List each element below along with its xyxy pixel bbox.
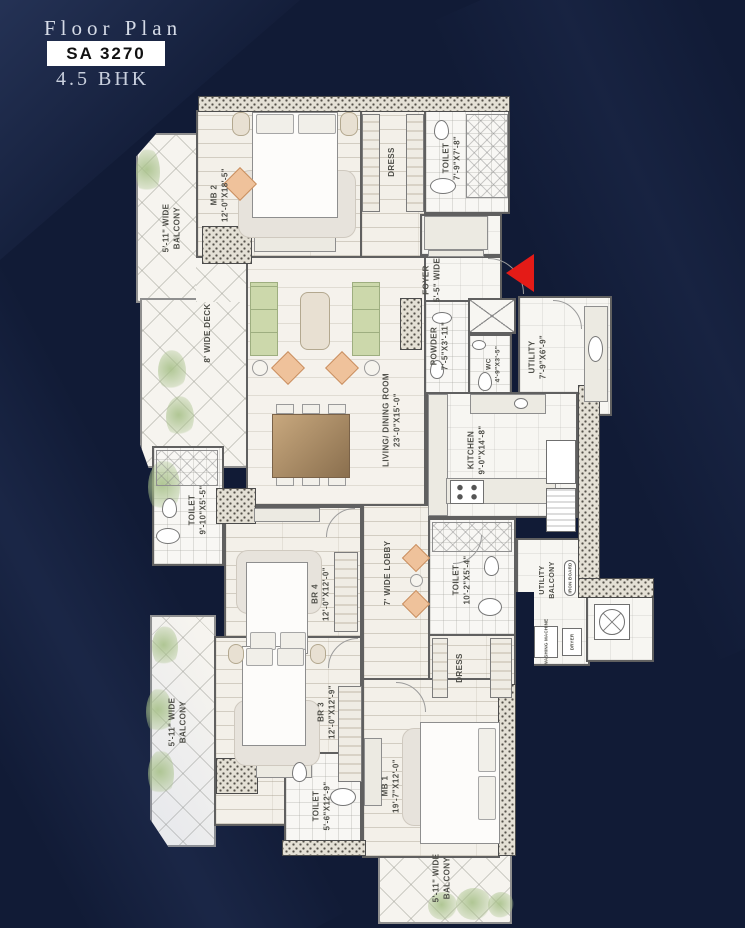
kitchen-tall-unit: [546, 488, 576, 532]
plant: [488, 892, 514, 918]
pillow: [478, 728, 496, 772]
plant: [166, 396, 194, 438]
iron-board-label: IRON BOARD: [568, 563, 573, 594]
side-table: [310, 644, 326, 664]
side-table: [228, 644, 244, 664]
dining-table: [272, 414, 350, 478]
pillow: [246, 648, 273, 666]
wardrobe: [362, 114, 380, 212]
wall-hatch: [578, 385, 600, 581]
wall-hatch: [498, 684, 516, 856]
dining-chair: [302, 404, 320, 414]
wall-hatch: [400, 298, 422, 350]
dresser: [364, 738, 382, 806]
plant: [456, 888, 492, 920]
shower-area: [156, 450, 218, 486]
washing-machine-label: WASHING MACHINE: [544, 619, 549, 666]
foyer-bench: [428, 250, 484, 257]
pillow: [298, 114, 336, 134]
entry-arrow-icon: [506, 254, 534, 292]
wall-hatch: [198, 96, 510, 112]
wc-icon: [478, 372, 492, 391]
kitchen-counter: [428, 394, 448, 516]
side-table: [340, 112, 358, 136]
plant: [152, 626, 178, 668]
sink-icon: [588, 336, 603, 362]
shaft: [468, 298, 516, 334]
washbasin-icon: [472, 340, 486, 350]
dryer-label: DRYER: [570, 634, 575, 651]
wardrobe: [432, 638, 448, 698]
washbasin-icon: [156, 528, 180, 544]
washbasin-icon: [478, 598, 502, 616]
side-table: [252, 360, 268, 376]
stove-icon: [450, 480, 484, 504]
dining-chair: [328, 404, 346, 414]
dining-chair: [276, 404, 294, 414]
washbasin-icon: [330, 788, 356, 806]
plant: [146, 688, 172, 736]
wardrobe: [406, 114, 424, 212]
floor-plan-page: Floor Plan SA 3270 4.5 BHK: [0, 0, 745, 928]
balcony-notch: [516, 592, 534, 666]
shower-area: [466, 114, 508, 198]
side-table: [410, 574, 423, 587]
sofa: [352, 282, 380, 356]
sink-icon: [514, 398, 528, 409]
refrigerator-icon: [546, 440, 576, 484]
deck-floor: [140, 298, 248, 468]
washbasin-icon: [432, 312, 452, 324]
side-table: [364, 360, 380, 376]
unit-code-badge: SA 3270: [47, 41, 165, 66]
wall-hatch: [216, 488, 256, 524]
wc-icon: [292, 762, 307, 782]
coffee-table: [300, 292, 330, 350]
wc-icon: [434, 120, 449, 140]
pillow: [277, 648, 304, 666]
wardrobe: [338, 686, 362, 782]
plant: [158, 350, 186, 392]
pillow: [478, 776, 496, 820]
plant: [136, 148, 160, 196]
dresser: [254, 508, 320, 522]
wc-icon: [484, 556, 499, 576]
wardrobe: [334, 552, 358, 632]
foyer-cabinet: [424, 216, 488, 250]
wall-hatch: [578, 578, 654, 598]
wc-icon: [430, 360, 444, 379]
kitchen-counter: [470, 394, 546, 414]
wall-hatch: [282, 840, 366, 856]
service-fan-box: [594, 604, 630, 640]
unit-type-label: 4.5 BHK: [56, 68, 149, 91]
plant: [428, 892, 458, 920]
wc-icon: [162, 498, 177, 518]
washbasin-icon: [430, 178, 456, 194]
page-title: Floor Plan: [44, 16, 182, 41]
sofa: [250, 282, 278, 356]
wardrobe: [490, 638, 512, 698]
pillow: [256, 114, 294, 134]
plant: [148, 750, 174, 798]
side-table: [232, 112, 250, 136]
fan-icon: [599, 609, 625, 635]
